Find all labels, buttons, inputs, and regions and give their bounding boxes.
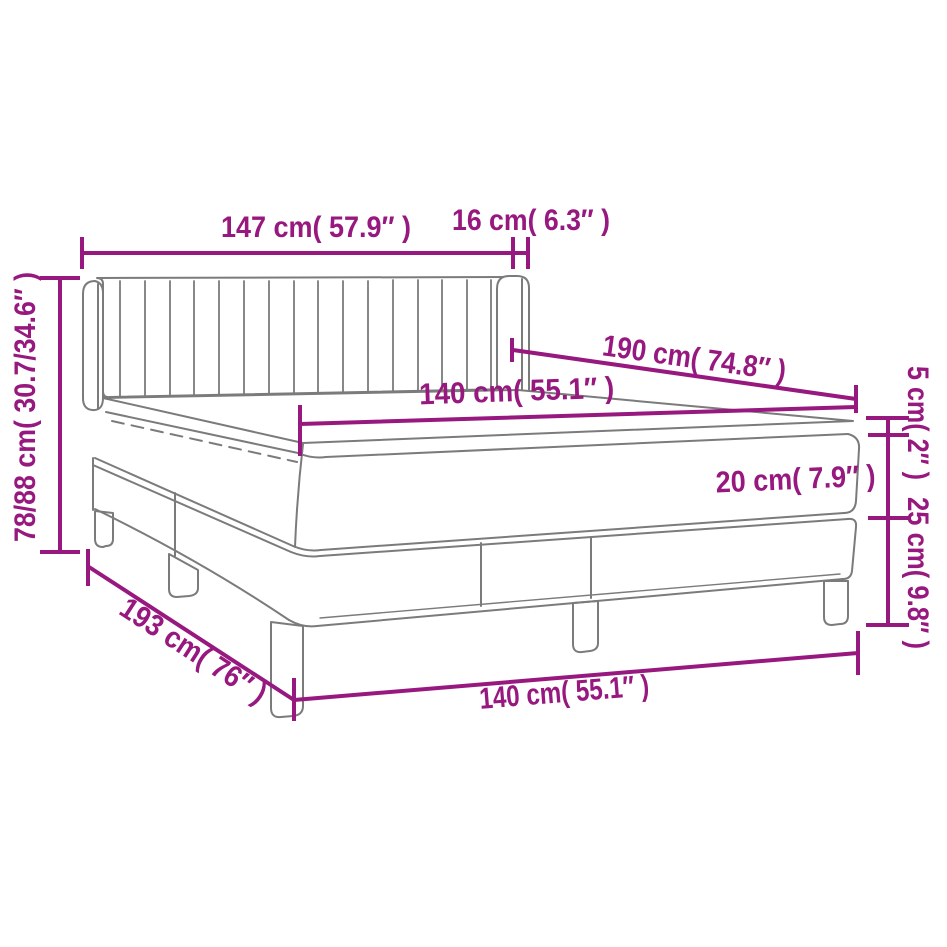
diagram-canvas: 147 cm( 57.9″ ) 16 cm( 6.3″ ) 78/88 cm( … (0, 0, 947, 947)
mattress-width-label: 140 cm( 55.1″ ) (419, 372, 615, 412)
base-bottom-front-edge (289, 579, 843, 626)
headboard-wing-left (83, 281, 103, 410)
leg-front-middle (573, 601, 598, 652)
headboard-width-label: 147 cm( 57.9″ ) (221, 211, 411, 244)
bed-length-label: 190 cm( 74.8″ ) (600, 329, 788, 387)
mattress-thickness-label: 20 cm( 7.9″ ) (715, 460, 876, 500)
topper-thickness-label: 5 cm( 2″ ) (901, 366, 934, 480)
leg-front-corner (271, 622, 303, 717)
leg-front-right (824, 581, 848, 625)
headboard-height-label: 78/88 cm( 30.7/34.6″ ) (9, 272, 42, 542)
base-width-label: 140 cm( 55.1″ ) (478, 669, 650, 716)
wing-depth-label: 16 cm( 6.3″ ) (452, 204, 610, 237)
base-height-label: 25 cm( 9.8″ ) (901, 497, 934, 649)
bed-dimension-diagram: 147 cm( 57.9″ ) 16 cm( 6.3″ ) 78/88 cm( … (0, 0, 947, 947)
dim-headboard-height-line (40, 278, 80, 552)
mattress-corner-edge (295, 444, 303, 547)
total-length-label: 193 cm( 76″ ) (114, 591, 273, 710)
base-right-edge (843, 519, 856, 579)
